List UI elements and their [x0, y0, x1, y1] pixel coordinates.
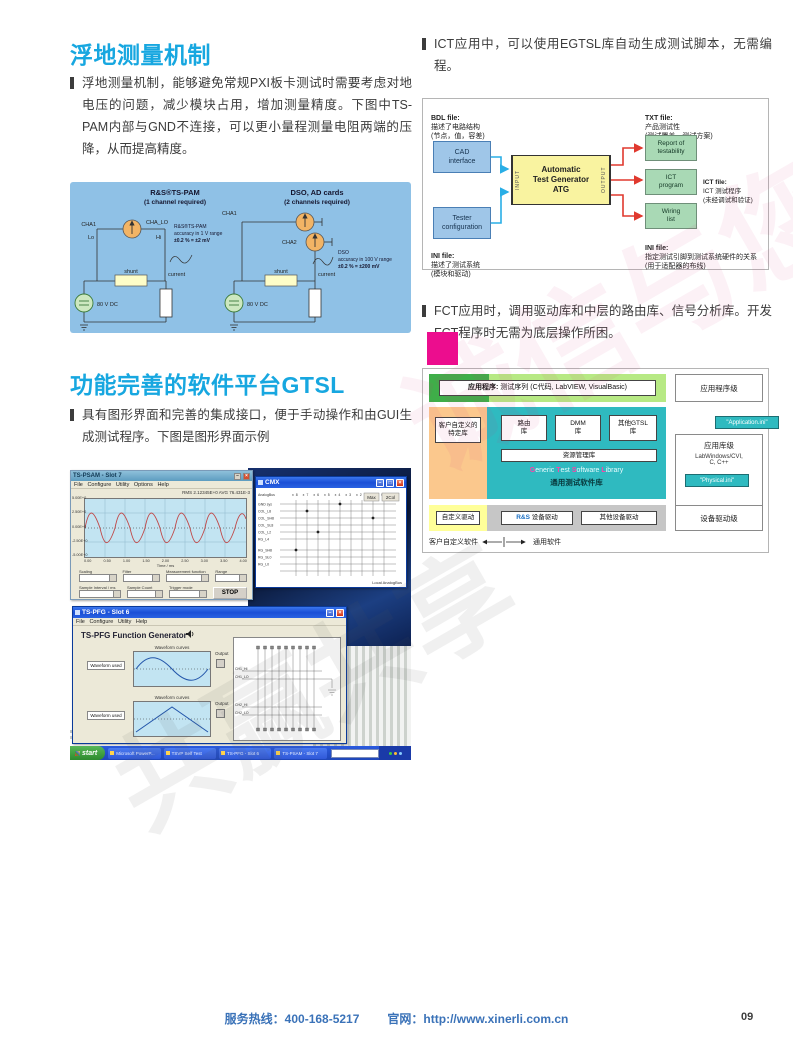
application-layer-bar: 应用程序: 测试序列 (C代码, LabVIEW, VisualBasic) — [429, 374, 666, 402]
automatic-test-generator-box: INPUT Automatic Test Generator ATG OUTPU… — [511, 155, 611, 205]
taskbar: start Microsoft PowerP... TSVP Self Test… — [70, 746, 411, 760]
library-level-box: 应用库级 LabWindows/CVI, C, C++ — [675, 434, 763, 512]
output-label: Output — [215, 701, 229, 706]
label-cha1-right: CHA1 — [222, 211, 237, 217]
y-tick: 0.00E+0 — [72, 525, 83, 529]
stop-button[interactable]: STOP — [213, 587, 247, 599]
paragraph-text: FCT应用时，调用驱动库和中层的路由库、信号分析库。开发FCT程序时无需为底层操… — [434, 300, 772, 344]
bottom-left-annotation: 客户自定义软件 — [429, 537, 478, 547]
driver-block: R&S 设备驱动 其他设备驱动 — [487, 505, 666, 531]
gtsl-chinese-label: 通用测试软件库 — [487, 477, 666, 488]
arrow-atg-to-report — [611, 148, 642, 165]
taskbar-field[interactable] — [331, 749, 380, 758]
psam-waveform-plot — [85, 499, 246, 557]
triangle-waveform — [136, 707, 208, 732]
start-button[interactable]: start — [70, 746, 105, 760]
label-lo: Lo — [88, 235, 94, 241]
matrix-row-label: RG_SH8 — [258, 549, 272, 553]
page-number: 09 — [741, 1011, 753, 1023]
arrow-tester-to-atg — [491, 192, 508, 223]
taskbar-task-tspsam[interactable]: TS-PSAM - Slot 7 — [274, 748, 326, 759]
gtsl-english-label: Generic Test Software Library — [487, 467, 666, 474]
app-icon — [166, 751, 170, 755]
circuit-right-title: DSO, AD cards — [290, 188, 343, 197]
paragraph-text: 具有图形界面和完善的集成接口，便于手动操作和由GUI生成测试程序。下图是图形界面… — [82, 404, 412, 448]
other-device-driver-box: 其他设备驱动 — [581, 511, 657, 525]
system-tray[interactable] — [379, 746, 411, 760]
custom-library-column: 客户自定义的 特定库 — [429, 407, 487, 499]
bullet-marker — [70, 77, 74, 89]
taskbar-task-tsvp[interactable]: TSVP Self Test — [164, 748, 216, 759]
routing-library-box: 路由 库 — [501, 415, 547, 441]
double-arrow-icon — [479, 536, 529, 548]
range-select[interactable] — [215, 574, 247, 582]
matrix-row-label: COL_SL8 — [258, 524, 273, 528]
magenta-highlight-square — [427, 332, 458, 365]
output-toggle[interactable] — [216, 659, 225, 668]
left-accuracy-3: ±0.2 % = ±2 mV — [174, 238, 211, 244]
channel-label: CH1_LO — [235, 675, 249, 679]
ts-psam-status: RMS 2.12345E+0 AVG 76.431E-3 — [71, 490, 254, 497]
label-source-left: 80 V DC — [97, 302, 118, 308]
label-current-right: current — [318, 272, 336, 278]
window-ts-pfg: TS-PFG - Slot 6 – × File Configure Utili… — [72, 606, 347, 744]
bullet-marker — [70, 409, 74, 421]
tray-icon — [399, 752, 402, 755]
paragraph-text: 浮地测量机制，能够避免常规PXI板卡测试时需要考虑对地电压的问题，减少模块占用，… — [82, 72, 412, 160]
dc-source-icon — [75, 294, 93, 312]
application-ini-box: "Application.ini" — [715, 416, 779, 429]
library-level-sub: LabWindows/CVI, C, C++ — [695, 454, 743, 466]
wiring-list-box: Wiring list — [645, 203, 697, 229]
dmm-library-box: DMM 库 — [555, 415, 601, 441]
gtsl-core-block: 路由 库 DMM 库 其他GTSL 库 资源管理库 Generic Test S… — [487, 407, 666, 499]
cad-interface-box: CAD interface — [433, 141, 491, 173]
ini-file-right-note: INI file:指定测试引脚到测试系统硬件的关系 (用于适配器的布线) — [645, 235, 765, 271]
window-icon — [75, 610, 80, 615]
ts-psam-titlebar[interactable]: TS-PSAM - Slot 7 – × — [71, 471, 252, 481]
y-tick: -2.50E+0 — [72, 539, 83, 543]
trigger-mode-select[interactable] — [169, 590, 207, 598]
label-hi: Hi — [156, 235, 161, 241]
paragraph-floating-measurement: 浮地测量机制，能够避免常规PXI板卡测试时需要考虑对地电压的问题，减少模块占用，… — [70, 72, 412, 160]
atg-label: Automatic Test Generator ATG — [523, 156, 599, 204]
footer-website: 官网：http://www.xinerli.com.cn — [387, 1010, 568, 1027]
pfg-channel1-panel: Waveform curves Waveform used Output — [87, 645, 229, 691]
speaker-icon — [185, 629, 195, 639]
psam-controls-row2: Sample Interval / ms Sample Count Trigge… — [79, 585, 209, 598]
y-tick: 5.00E+0 — [72, 496, 83, 500]
label-cha-lo: CHA_LO — [146, 220, 169, 226]
circuit-left-title: R&S®TS-PAM — [150, 188, 200, 197]
label-cha1: CHA1 — [81, 222, 96, 228]
ts-pfg-menubar[interactable]: File Configure Utility Help — [73, 618, 346, 626]
measurement-function-select[interactable] — [166, 574, 209, 582]
page: 诚信与您 共赢共享 浮地测量机制 浮地测量机制，能够避免常规PXI板卡测试时需要… — [0, 0, 793, 1058]
output-label: Output — [215, 651, 229, 656]
ts-pfg-title: TS-PFG - Slot 6 — [82, 609, 324, 616]
matrix-row-label: RG_L4 — [258, 538, 269, 542]
ict-file-note: ICT file:ICT 测试程序 (未经调试和验证) — [703, 169, 765, 205]
load-resistor — [309, 289, 321, 317]
matrix-row-label: COL_L2 — [258, 531, 271, 535]
sample-interval-input[interactable] — [79, 590, 121, 598]
ts-psam-chart — [84, 498, 247, 558]
paragraph-ict: ICT应用中，可以使用EGTSL库自动生成测试脚本，无需编程。 — [422, 33, 772, 77]
maximize-button[interactable]: □ — [386, 479, 394, 487]
load-resistor — [160, 289, 172, 317]
y-tick: 2.50E+0 — [72, 510, 83, 514]
windows-logo-icon — [75, 751, 80, 756]
arrow-atg-to-wiring — [611, 195, 642, 216]
matrix-row-label: COL_L8 — [258, 510, 271, 514]
driver-level-box: 设备驱动级 — [675, 505, 763, 531]
ts-psam-menubar[interactable]: File Configure Utility Options Help — [71, 481, 252, 489]
custom-library-box: 客户自定义的 特定库 — [435, 417, 481, 443]
circuit-right-subtitle: (2 channels required) — [284, 199, 350, 206]
resource-manager-box: 资源管理库 — [501, 449, 657, 462]
floating-measurement-circuit-diagram: R&S®TS-PAM (1 channel required) DSO, AD … — [70, 182, 411, 333]
minimize-button[interactable]: – — [376, 479, 384, 487]
matrix-row-label: RG_SL0 — [258, 556, 271, 560]
ict-program-box: ICT program — [645, 169, 697, 195]
custom-driver-box: 自定义驱动 — [436, 511, 480, 525]
shunt-resistor — [265, 275, 297, 286]
pfg-schematic: CH1_HI CH1_LO CH2_HI CH2_LO — [233, 637, 341, 741]
minimize-button[interactable]: – — [234, 473, 241, 480]
app-icon — [221, 751, 225, 755]
channel-label: CH2_LO — [235, 711, 249, 715]
pfg-heading: TS-PFG Function Generator — [81, 631, 187, 640]
left-accuracy-1: R&S®TS-PAM — [174, 223, 206, 230]
tray-icon — [394, 752, 397, 755]
shunt-resistor — [115, 275, 147, 286]
panel-label: Waveform curves — [133, 645, 211, 650]
app-icon — [110, 751, 114, 755]
triangle-panel-chart — [133, 701, 211, 737]
sample-count-input[interactable] — [127, 590, 163, 598]
ini-file-left-note: INI file:描述了测试系统 (模块和驱动) — [431, 243, 480, 279]
waveform-used-select[interactable]: Waveform used — [87, 661, 125, 670]
rs-device-driver-box: R&S 设备驱动 — [501, 511, 573, 525]
tester-configuration-box: Tester configuration — [433, 207, 491, 239]
window-cmx: CMX – □ × AnalogBus x8 x7 x6 x5 x4 x3 x2… — [255, 476, 407, 588]
taskbar-task-powerpoint[interactable]: Microsoft PowerP... — [108, 748, 160, 759]
dc-source-icon — [225, 294, 243, 312]
panel-label: Waveform curves — [133, 695, 211, 700]
label-source-right: 80 V DC — [247, 302, 268, 308]
application-level-box: 应用程序级 — [675, 374, 763, 402]
tray-icon — [389, 752, 392, 755]
window-ts-psam: TS-PSAM - Slot 7 – × File Configure Util… — [70, 470, 253, 600]
svg-text:Max: Max — [367, 495, 376, 500]
close-button[interactable]: × — [243, 473, 250, 480]
arrow-cad-to-atg — [491, 157, 508, 169]
ts-psam-title: TS-PSAM - Slot 7 — [73, 473, 232, 479]
software-screenshot: TS-PSAM - Slot 7 – × File Configure Util… — [70, 468, 411, 760]
atg-output-strip: OUTPUT — [599, 156, 610, 204]
bottom-right-annotation: 通用软件 — [533, 537, 561, 547]
label-cha2: CHA2 — [282, 240, 297, 246]
matrix-row-label: AnalogBus — [258, 493, 275, 497]
section-title-gtsl: 功能完善的软件平台GTSL — [70, 366, 345, 400]
cmx-title: CMX — [265, 479, 374, 486]
other-gtsl-library-box: 其他GTSL 库 — [609, 415, 657, 441]
output-toggle[interactable] — [216, 709, 225, 718]
close-button[interactable]: × — [336, 609, 344, 617]
report-of-testability-box: Report of testability — [645, 135, 697, 161]
application-bar-label: 应用程序: 测试序列 (C代码, LabVIEW, VisualBasic) — [439, 380, 656, 396]
footer: 服务热线：400-168-5217 官网：http://www.xinerli.… — [0, 1010, 793, 1027]
sine-panel-chart — [133, 651, 211, 687]
scaling-select[interactable] — [79, 574, 117, 582]
matrix-bottom-label: Local AnalogBus — [372, 580, 402, 585]
cmx-2col-button[interactable]: 2Col — [382, 493, 399, 501]
footer-hotline: 服务热线：400-168-5217 — [225, 1010, 360, 1027]
psam-controls-row1: Scaling Filter Measurement function Rang… — [79, 569, 247, 582]
cmx-matrix-plot: AnalogBus x8 x7 x6 x5 x4 x3 x2 x1 x0 GND… — [256, 488, 406, 587]
ts-pfg-titlebar[interactable]: TS-PFG - Slot 6 – × — [73, 607, 346, 618]
custom-driver-column: 自定义驱动 — [429, 505, 487, 531]
cmx-titlebar[interactable]: CMX – □ × — [256, 477, 406, 488]
window-icon — [258, 480, 263, 485]
svg-text:2Col: 2Col — [386, 495, 395, 500]
library-level-label: 应用库级 — [704, 440, 734, 451]
atg-flow-diagram: BDL file:描述了电路结构 (节点，值，容差) CAD interface… — [422, 98, 769, 270]
taskbar-task-tspfg[interactable]: TS-PFG - Slot 6 — [219, 748, 271, 759]
waveform-used-select[interactable]: Waveform used — [87, 711, 125, 720]
paragraph-gtsl: 具有图形界面和完善的集成接口，便于手动操作和由GUI生成测试程序。下图是图形界面… — [70, 404, 412, 448]
app-icon — [276, 751, 280, 755]
bullet-marker — [422, 38, 426, 50]
x-axis-label: Time / ms — [84, 563, 247, 568]
channel-label: CH2_HI — [235, 703, 247, 707]
filter-select[interactable] — [123, 574, 161, 582]
section-title-floating-measurement: 浮地测量机制 — [70, 36, 211, 70]
website-link[interactable]: http://www.xinerli.com.cn — [423, 1012, 568, 1026]
gtsl-architecture-diagram: 应用程序: 测试序列 (C代码, LabVIEW, VisualBasic) 应… — [422, 368, 769, 553]
bdl-file-note: BDL file:描述了电路结构 (节点，值，容差) — [431, 105, 485, 141]
right-accuracy-3: ±0.2 % = ±200 mV — [338, 264, 380, 270]
label-current-left: current — [168, 272, 186, 278]
pfg-channel2-panel: Waveform curves Waveform used Output — [87, 695, 229, 741]
matrix-row-label: GND sys — [258, 503, 272, 507]
paragraph-fct: FCT应用时，调用驱动库和中层的路由库、信号分析库。开发FCT程序时无需为底层操… — [422, 300, 772, 344]
paragraph-text: ICT应用中，可以使用EGTSL库自动生成测试脚本，无需编程。 — [434, 33, 772, 77]
right-accuracy-2: accuracy in 100 V range — [338, 257, 392, 263]
right-accuracy-1: DSO — [338, 250, 349, 256]
matrix-row-label: RG_L0 — [258, 563, 269, 567]
physical-ini-box: "Physical.ini" — [685, 474, 749, 487]
label-shunt-left: shunt — [124, 269, 138, 275]
circuit-left-subtitle: (1 channel required) — [144, 199, 206, 206]
bullet-marker — [422, 305, 426, 317]
close-button[interactable]: × — [396, 479, 404, 487]
left-accuracy-2: accuracy in 1 V range — [174, 231, 223, 237]
channel-label: CH1_HI — [235, 667, 247, 671]
atg-input-strip: INPUT — [512, 156, 523, 204]
matrix-row-label: COL_SH8 — [258, 517, 274, 521]
y-tick: -5.00E+0 — [72, 553, 83, 557]
minimize-button[interactable]: – — [326, 609, 334, 617]
label-shunt-right: shunt — [274, 269, 288, 275]
cmx-max-button[interactable]: Max — [364, 493, 379, 501]
